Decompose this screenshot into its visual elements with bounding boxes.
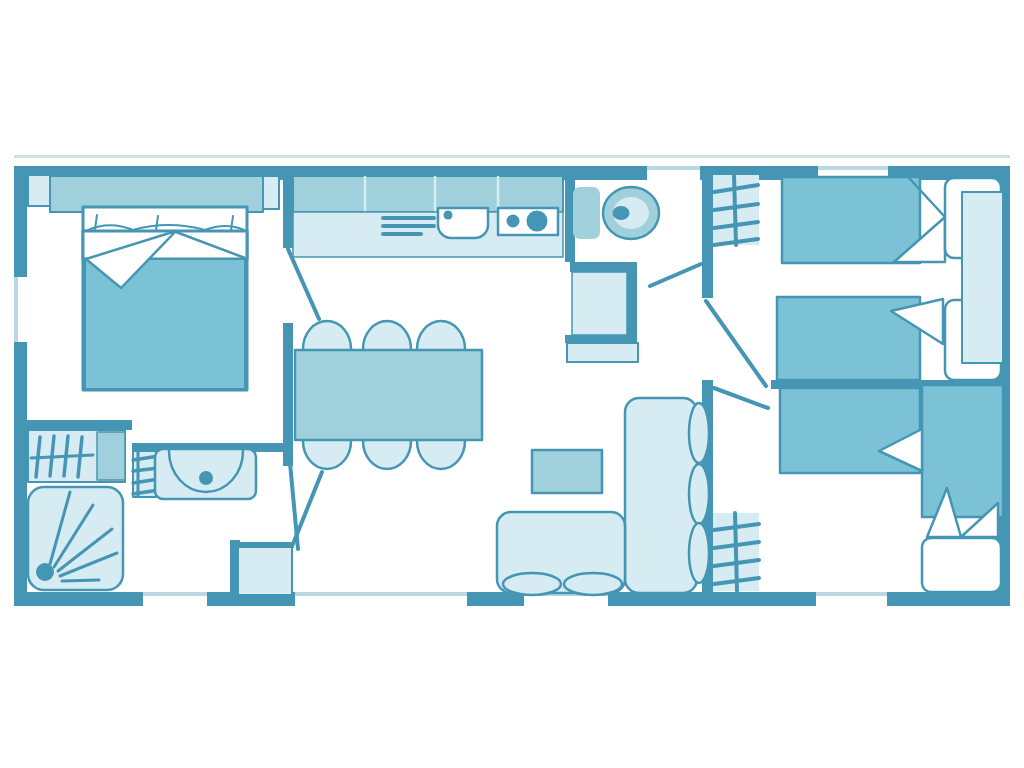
shelf-pole <box>734 175 736 245</box>
coffee-table <box>532 450 602 493</box>
sofa-cushion <box>689 464 709 524</box>
entrance-door-panel <box>238 547 292 595</box>
sofa-vertical <box>625 398 697 593</box>
wall-closet-bottom <box>565 335 637 343</box>
wall-bedroom-kitchen <box>283 166 293 248</box>
shower-head <box>36 563 54 581</box>
sofa-cushion <box>689 403 709 463</box>
sofa-cushion <box>564 573 622 595</box>
door-swing <box>714 388 768 408</box>
dining-table <box>295 350 482 440</box>
kitchen-cabinets <box>293 176 563 212</box>
door-swing <box>288 249 319 319</box>
window <box>14 277 18 342</box>
window <box>143 592 207 596</box>
sofa-cushion <box>689 523 709 583</box>
hob-burner-small <box>507 215 520 228</box>
entrance-door-edge <box>236 542 294 548</box>
pillow <box>922 538 1001 592</box>
window <box>816 592 887 596</box>
outer-wall-left <box>14 166 27 277</box>
window <box>295 592 467 596</box>
single-bed <box>782 177 920 263</box>
wall-closet-top <box>570 262 637 272</box>
outer-wall-left <box>14 342 27 606</box>
hanging-wardrobe-side <box>97 432 125 480</box>
outer-wall-bottom <box>887 592 1010 606</box>
wardrobe-right-end <box>263 176 279 209</box>
door-swing <box>706 301 766 386</box>
wardrobe-left-end <box>28 175 50 206</box>
toilet-cistern <box>573 187 600 239</box>
sofa-cushion <box>503 573 561 595</box>
door-swing <box>650 264 701 286</box>
single-bed-vertical <box>922 385 1003 517</box>
washbasin-faucet <box>199 471 213 485</box>
wall-closet-right <box>627 262 637 343</box>
wall-hallway-upper <box>702 166 713 298</box>
toilet-bowl-dot <box>613 206 630 220</box>
utility-shelf <box>567 343 638 362</box>
utility-closet <box>572 272 627 335</box>
wardrobe-strip <box>962 192 1003 363</box>
floorplan <box>0 0 1024 768</box>
door-swing <box>293 472 322 544</box>
roof-outline <box>14 155 1010 158</box>
sink-faucet <box>444 211 453 220</box>
shower-spray <box>62 580 99 581</box>
hob-burner-large <box>527 211 548 232</box>
window <box>647 166 700 170</box>
wall-bathroom-north <box>27 420 132 430</box>
floorplan-page <box>0 0 1024 768</box>
window <box>818 166 888 170</box>
outer-wall-bottom <box>14 592 143 606</box>
